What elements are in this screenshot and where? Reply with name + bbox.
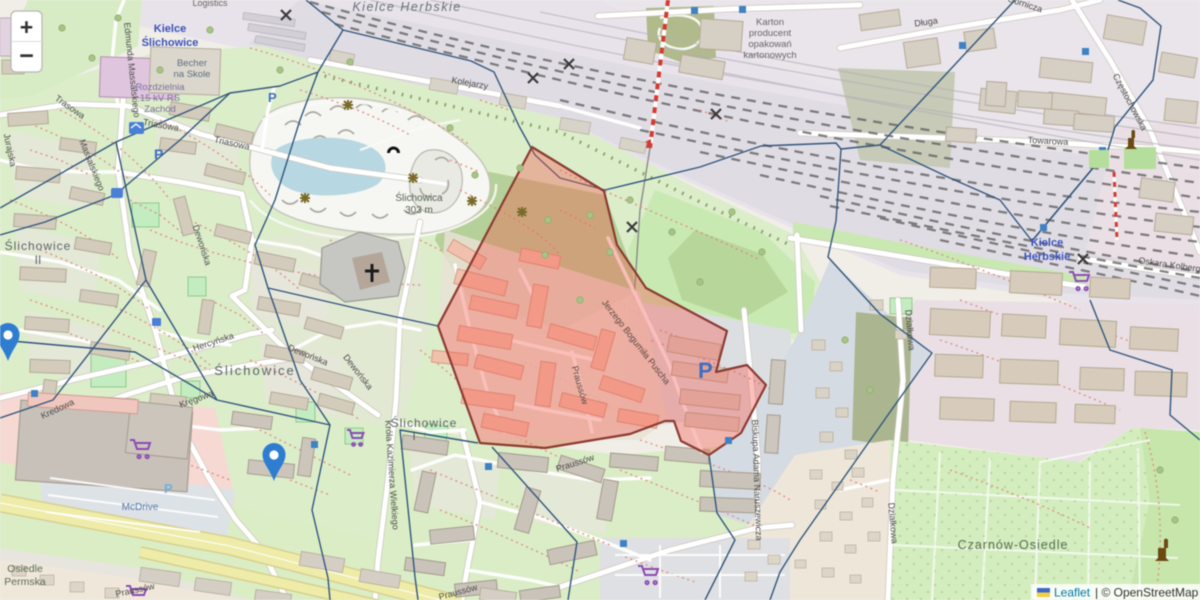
svg-text:opakowań: opakowań — [748, 39, 791, 50]
svg-text:McDrive: McDrive — [122, 502, 159, 513]
svg-text:Kielce: Kielce — [154, 23, 186, 35]
svg-text:Karton: Karton — [756, 17, 784, 28]
svg-text:Kielce: Kielce — [1031, 237, 1063, 249]
svg-text:Becher: Becher — [177, 58, 207, 69]
svg-text:Rozdzielnia: Rozdzielnia — [135, 82, 185, 93]
svg-text:| © OpenStreetMap: | © OpenStreetMap — [1095, 586, 1199, 600]
svg-text:Osiedle: Osiedle — [7, 563, 43, 575]
svg-text:Ślichowice: Ślichowice — [142, 36, 199, 49]
svg-text:Ślichowice: Ślichowice — [5, 238, 72, 253]
svg-text:P: P — [698, 358, 713, 383]
svg-text:303 m: 303 m — [405, 205, 433, 216]
svg-text:Towarowa: Towarowa — [1028, 135, 1069, 147]
svg-text:producent: producent — [749, 28, 792, 39]
svg-text:I: I — [412, 429, 415, 443]
svg-text:Leaflet: Leaflet — [1054, 586, 1091, 600]
svg-text:Czarnów-Osiedle: Czarnów-Osiedle — [958, 538, 1069, 552]
svg-text:P: P — [268, 90, 277, 105]
svg-text:Kielce Herbskie: Kielce Herbskie — [352, 0, 461, 14]
svg-text:P: P — [164, 481, 173, 496]
svg-text:Ślichowice: Ślichowice — [391, 415, 458, 430]
svg-text:kartonowych: kartonowych — [743, 50, 796, 61]
svg-text:+: + — [20, 14, 33, 40]
svg-text:P: P — [154, 146, 163, 162]
svg-text:Permska: Permska — [4, 576, 46, 588]
svg-text:Zachód: Zachód — [144, 104, 176, 115]
svg-text:Herbskie: Herbskie — [1024, 251, 1070, 263]
svg-text:na Skole: na Skole — [174, 69, 211, 80]
svg-text:Ślichowica: Ślichowica — [395, 191, 443, 204]
svg-text:15 kV RS: 15 kV RS — [140, 93, 180, 104]
svg-text:Ślichowice: Ślichowice — [214, 363, 295, 378]
svg-text:−: − — [19, 42, 34, 70]
svg-text:Logistics: Logistics — [192, 0, 228, 8]
svg-text:II: II — [35, 253, 42, 267]
